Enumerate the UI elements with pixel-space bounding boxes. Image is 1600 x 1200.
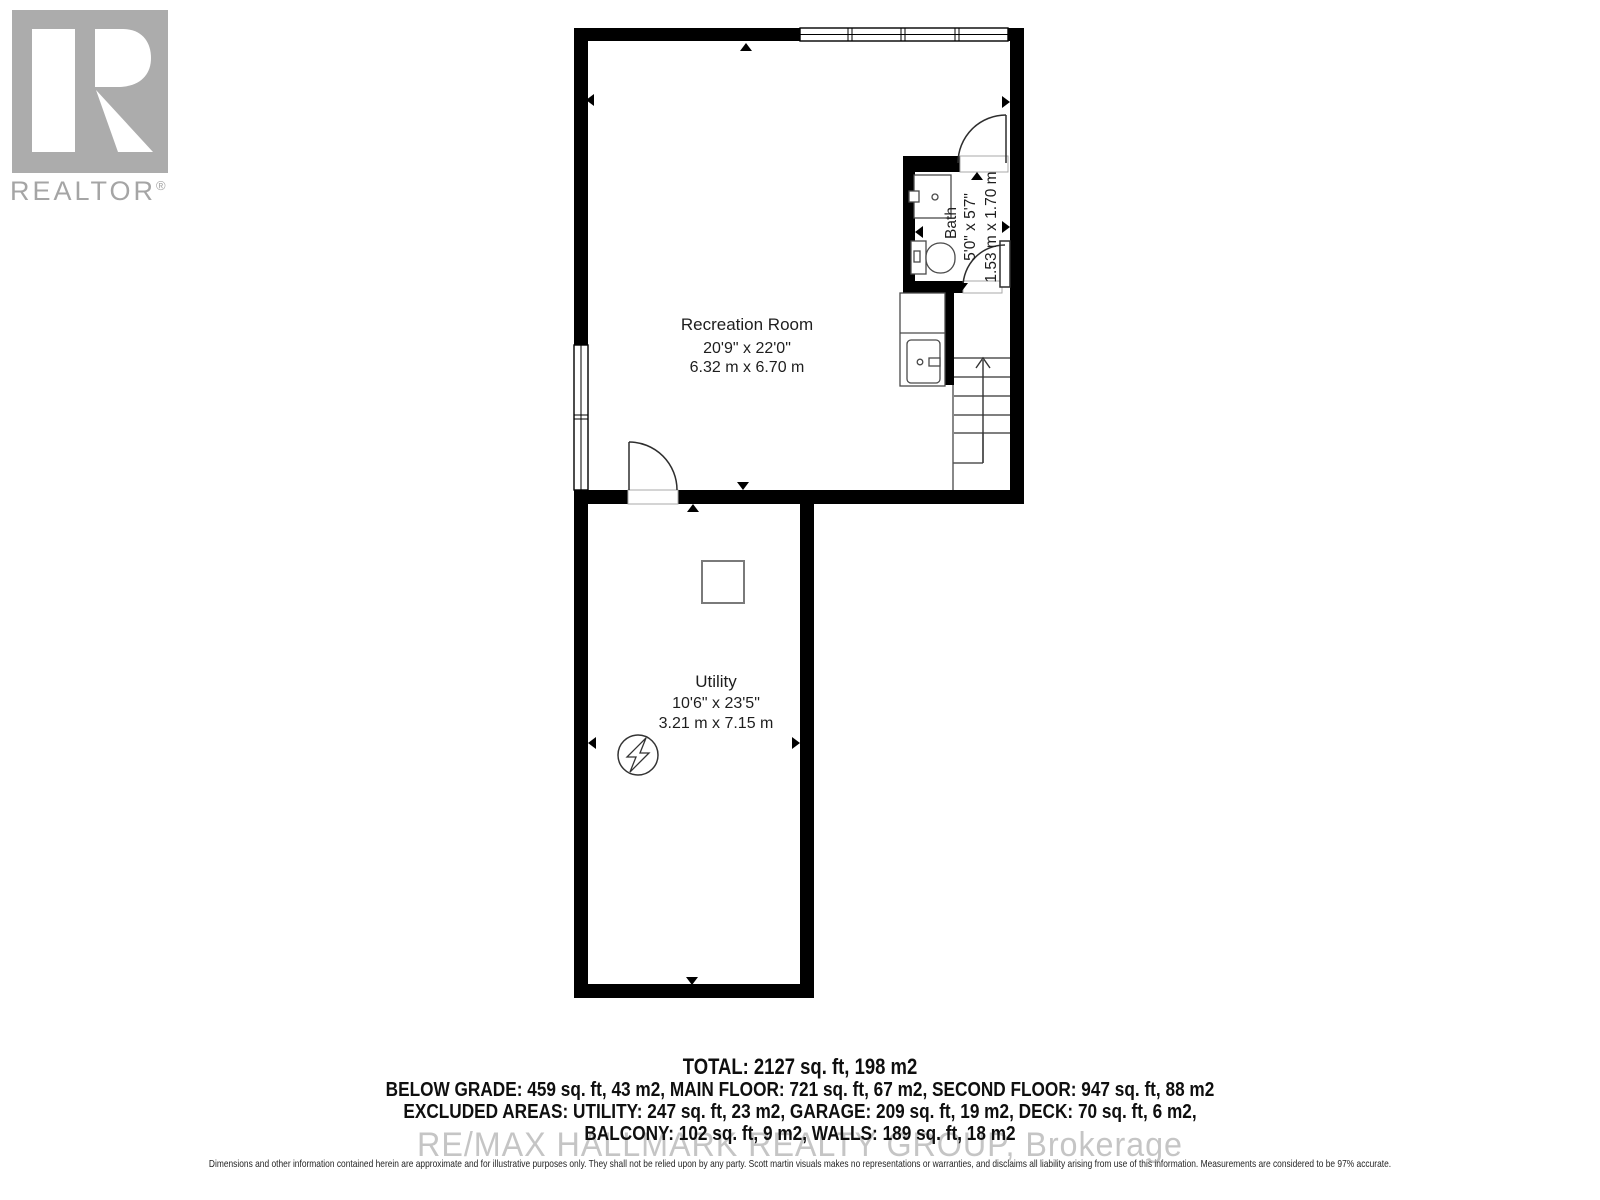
total-area-line: TOTAL: 2127 sq. ft, 198 m2 bbox=[128, 1054, 1472, 1080]
recreation-room-label: Recreation Room bbox=[597, 315, 897, 335]
excluded-areas-line: EXCLUDED AREAS: UTILITY: 247 sq. ft, 23 … bbox=[128, 1100, 1472, 1124]
furnace-square bbox=[702, 561, 744, 603]
exterior-walls bbox=[574, 28, 1024, 998]
window-left bbox=[574, 345, 588, 490]
door-utility bbox=[629, 442, 677, 490]
utility-room-dims-metric: 3.21 m x 7.15 m bbox=[566, 715, 866, 733]
recreation-room-dims-metric: 6.32 m x 6.70 m bbox=[597, 359, 897, 377]
stairs-up-arrow bbox=[976, 358, 990, 463]
toilet bbox=[911, 241, 955, 274]
disclaimer-text: Dimensions and other information contain… bbox=[160, 1158, 1440, 1170]
bath-label: Bath bbox=[943, 207, 961, 239]
staircase bbox=[953, 358, 1010, 490]
electrical-panel-icon bbox=[618, 735, 658, 775]
balcony-walls-line: BALCONY: 102 sq. ft, 9 m2, WALLS: 189 sq… bbox=[128, 1122, 1472, 1146]
utility-room-dims-imperial: 10'6" x 23'5" bbox=[566, 695, 866, 713]
bath-dims-metric: 1.53 m x 1.70 m bbox=[983, 171, 1001, 282]
recreation-room-dims-imperial: 20'9" x 22'0" bbox=[597, 340, 897, 358]
floor-areas-line: BELOW GRADE: 459 sq. ft, 43 m2, MAIN FLO… bbox=[128, 1078, 1472, 1102]
floorplan-drawing bbox=[0, 0, 1600, 1200]
laundry-sink bbox=[900, 293, 945, 386]
window-top bbox=[800, 28, 1008, 41]
bath-dims-imperial: 5'0" x 5'7" bbox=[962, 193, 980, 261]
utility-room-label: Utility bbox=[566, 672, 866, 692]
